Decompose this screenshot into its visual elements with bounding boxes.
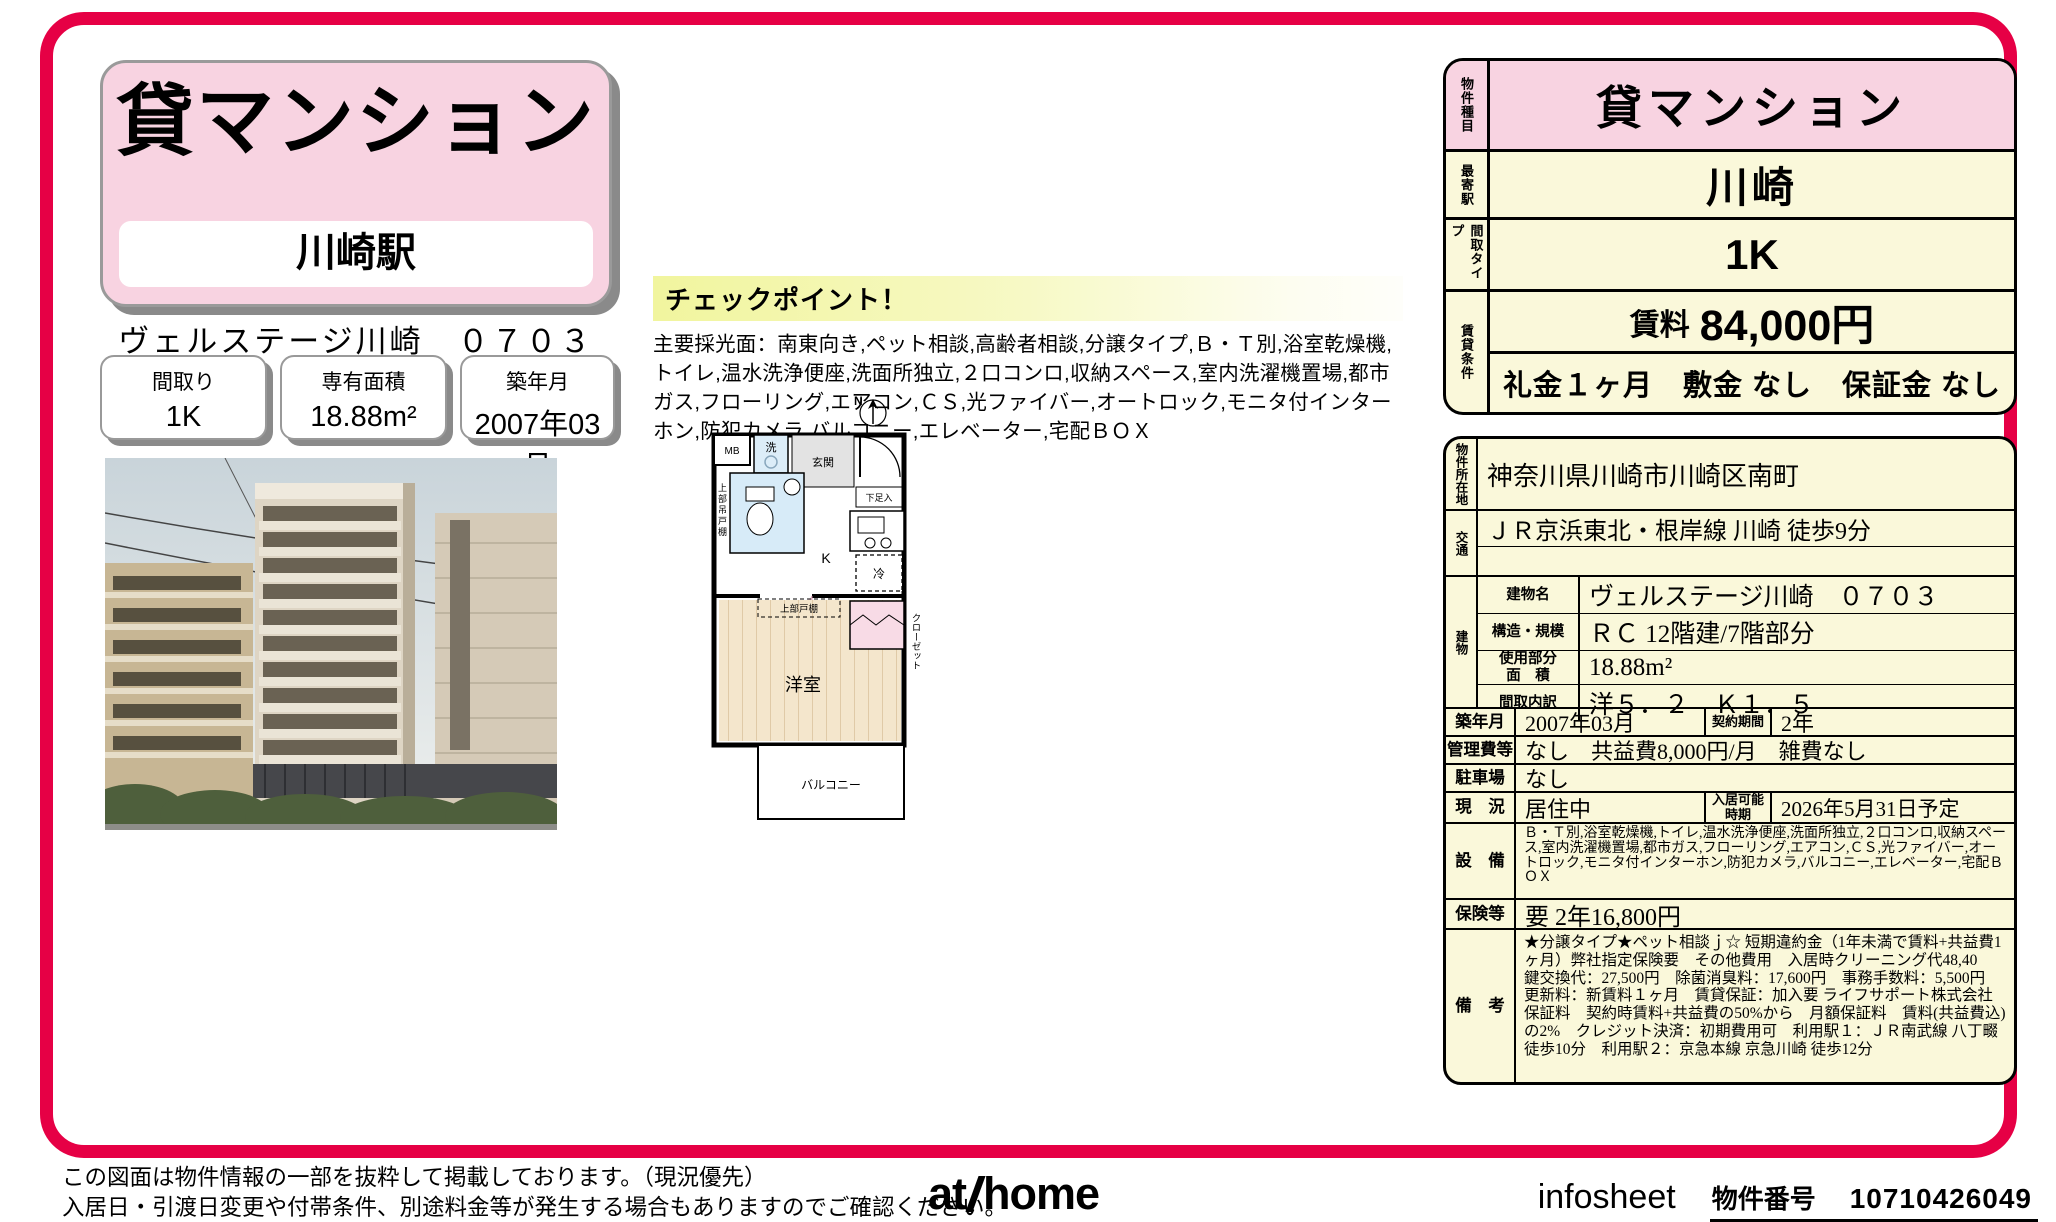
building-name-value: ヴェルステージ川崎 ０７０３ bbox=[1580, 577, 2014, 613]
summary-table: 物件種目 貸マンション 最寄駅 川崎 間取タイプ 1K 賃貸条件 賃料 84,0… bbox=[1443, 58, 2017, 415]
upper-hanging-cabinet-label: 上部吊戸棚 bbox=[717, 483, 727, 538]
contract-label: 契約期間 bbox=[1706, 709, 1772, 735]
entrance-label: 玄関 bbox=[812, 455, 834, 469]
info-box-built: 築年月 2007年03月 bbox=[460, 355, 615, 440]
insurance-value: 要 2年16,800円 bbox=[1516, 900, 2014, 928]
building-name-label: 建物名 bbox=[1478, 577, 1580, 613]
athome-logo: at home bbox=[928, 1168, 1099, 1220]
structure-value: ＲＣ 12階建/7階部分 bbox=[1580, 614, 2014, 650]
building-label: 建物 bbox=[1446, 577, 1478, 707]
compass-n-label: N bbox=[854, 394, 863, 408]
structure-label: 構造・規模 bbox=[1478, 614, 1580, 650]
notes-label: 備 考 bbox=[1446, 930, 1516, 1082]
summary-type-label: 物件種目 bbox=[1446, 61, 1490, 149]
rent-value: 84,000円 bbox=[1700, 291, 1875, 353]
used-area-value: 18.88m² bbox=[1580, 651, 2014, 684]
mb-label: MB bbox=[725, 446, 740, 457]
sheet-info: infosheet 物件番号 10710426049 bbox=[1538, 1178, 2038, 1222]
summary-layout-label: 間取タイプ bbox=[1446, 217, 1490, 289]
status-row: 現 況 居住中 入居可能 時期 2026年5月31日予定 bbox=[1446, 791, 2014, 822]
info-box-area: 専有面積 18.88m² bbox=[280, 355, 447, 440]
station-name-box: 川崎駅 bbox=[119, 221, 593, 287]
info-box-layout: 間取り 1K bbox=[100, 355, 267, 440]
built-date-value: 2007年03月 bbox=[1516, 709, 1706, 735]
contract-value: 2年 bbox=[1772, 709, 2014, 735]
fees-row: 管理費等 なし 共益費8,000円/月 雑費なし bbox=[1446, 735, 2014, 763]
rent-label: 賃料 bbox=[1630, 300, 1690, 344]
washer-label: 洗 bbox=[766, 441, 777, 454]
building-photo bbox=[105, 458, 557, 830]
rent-row: 賃料 84,000円 bbox=[1490, 289, 2014, 351]
address-row: 物件所在地 神奈川県川崎市川崎区南町 bbox=[1446, 439, 2014, 509]
kitchen-label: K bbox=[821, 550, 831, 566]
building-rows: 建物 建物名 ヴェルステージ川崎 ０７０３ 構造・規模 ＲＣ 12階建/7階部分… bbox=[1446, 575, 2014, 707]
property-type-title: 貸マンション bbox=[103, 79, 609, 165]
western-room-label: 洋室 bbox=[785, 675, 821, 695]
equipment-row: 設 備 Ｂ・Ｔ別,浴室乾燥機,トイレ,温水洗浄便座,洗面所独立,２口コンロ,収納… bbox=[1446, 822, 2014, 898]
infosheet-page: 貸マンション 川崎駅 ヴェルステージ川崎 ０７０３ 間取り 1K 専有面積 18… bbox=[0, 0, 2056, 1222]
property-type-card: 貸マンション 川崎駅 bbox=[100, 60, 612, 307]
compass-icon: N bbox=[854, 394, 886, 426]
area-label: 専有面積 bbox=[282, 366, 445, 396]
property-number-value: 10710426049 bbox=[1850, 1183, 2032, 1215]
shoe-box-label: 下足入 bbox=[865, 493, 892, 503]
address-value: 神奈川県川崎市川崎区南町 bbox=[1478, 439, 2014, 509]
layout-label: 間取り bbox=[102, 366, 265, 396]
access-row: 交通 ＪＲ京浜東北・根岸線 川崎 徒歩9分 bbox=[1446, 509, 2014, 575]
address-label: 物件所在地 bbox=[1446, 439, 1478, 509]
floor-plan: N MB 洗 玄関 下足入 上部吊戸棚 K 冷 bbox=[700, 391, 925, 836]
available-value: 2026年5月31日予定 bbox=[1772, 793, 2014, 822]
fridge-label: 冷 bbox=[873, 567, 885, 581]
checkpoint-title: チェックポイント！ bbox=[653, 276, 1403, 321]
access-empty bbox=[1478, 547, 2014, 575]
summary-station-value: 川崎 bbox=[1490, 149, 2014, 217]
insurance-row: 保険等 要 2年16,800円 bbox=[1446, 898, 2014, 928]
equipment-value: Ｂ・Ｔ別,浴室乾燥機,トイレ,温水洗浄便座,洗面所独立,２口コンロ,収納スペース… bbox=[1516, 824, 2014, 898]
athome-logo-at: at bbox=[928, 1168, 966, 1220]
summary-layout-value: 1K bbox=[1490, 217, 2014, 289]
summary-terms-label: 賃貸条件 bbox=[1446, 289, 1490, 412]
disclaimer-line-1: この図面は物件情報の一部を抜粋して掲載しております。（現況優先） bbox=[62, 1164, 766, 1192]
upper-cabinet-label: 上部戸棚 bbox=[780, 603, 818, 615]
property-number-label: 物件番号 bbox=[1712, 1179, 1816, 1216]
access-value: ＪＲ京浜東北・根岸線 川崎 徒歩9分 bbox=[1478, 511, 2014, 547]
status-label: 現 況 bbox=[1446, 793, 1516, 822]
access-label: 交通 bbox=[1446, 511, 1478, 575]
parking-value: なし bbox=[1516, 765, 2014, 791]
notes-row: 備 考 ★分譲タイプ★ペット相談ｊ☆ 短期違約金（1年未満で賃料+共益費1ヶ月）… bbox=[1446, 928, 2014, 1082]
notes-value: ★分譲タイプ★ペット相談ｊ☆ 短期違約金（1年未満で賃料+共益費1ヶ月）弊社指定… bbox=[1516, 930, 2014, 1082]
summary-station-label: 最寄駅 bbox=[1446, 149, 1490, 217]
move-in-terms: 礼金１ヶ月 敷金 なし 保証金 なし bbox=[1490, 351, 2014, 412]
status-value: 居住中 bbox=[1516, 793, 1706, 822]
parking-row: 駐車場 なし bbox=[1446, 763, 2014, 791]
built-label: 築年月 bbox=[462, 366, 613, 396]
layout-value: 1K bbox=[102, 401, 265, 434]
insurance-label: 保険等 bbox=[1446, 900, 1516, 928]
parking-label: 駐車場 bbox=[1446, 765, 1516, 791]
athome-logo-home: home bbox=[983, 1168, 1099, 1220]
summary-type-value: 貸マンション bbox=[1490, 61, 2014, 149]
property-number-group: 物件番号 10710426049 bbox=[1710, 1179, 2038, 1222]
fees-value: なし 共益費8,000円/月 雑費なし bbox=[1516, 737, 2014, 763]
available-label: 入居可能 時期 bbox=[1706, 793, 1772, 822]
used-area-label: 使用部分 面 積 bbox=[1478, 651, 1580, 684]
area-value: 18.88m² bbox=[282, 401, 445, 434]
disclaimer-line-2: 入居日・引渡日変更や付帯条件、別途料金等が発生する場合もありますのでご確認くださ… bbox=[62, 1194, 1007, 1222]
closet-label: クローゼット bbox=[910, 613, 922, 670]
detail-table: 物件所在地 神奈川県川崎市川崎区南町 交通 ＪＲ京浜東北・根岸線 川崎 徒歩9分… bbox=[1443, 436, 2017, 1085]
built-row: 築年月 2007年03月 契約期間 2年 bbox=[1446, 707, 2014, 735]
fees-label: 管理費等 bbox=[1446, 737, 1516, 763]
sheet-type-label: infosheet bbox=[1538, 1178, 1676, 1217]
equipment-label: 設 備 bbox=[1446, 824, 1516, 898]
balcony-label: バルコニー bbox=[801, 778, 861, 792]
built-date-label: 築年月 bbox=[1446, 709, 1516, 735]
